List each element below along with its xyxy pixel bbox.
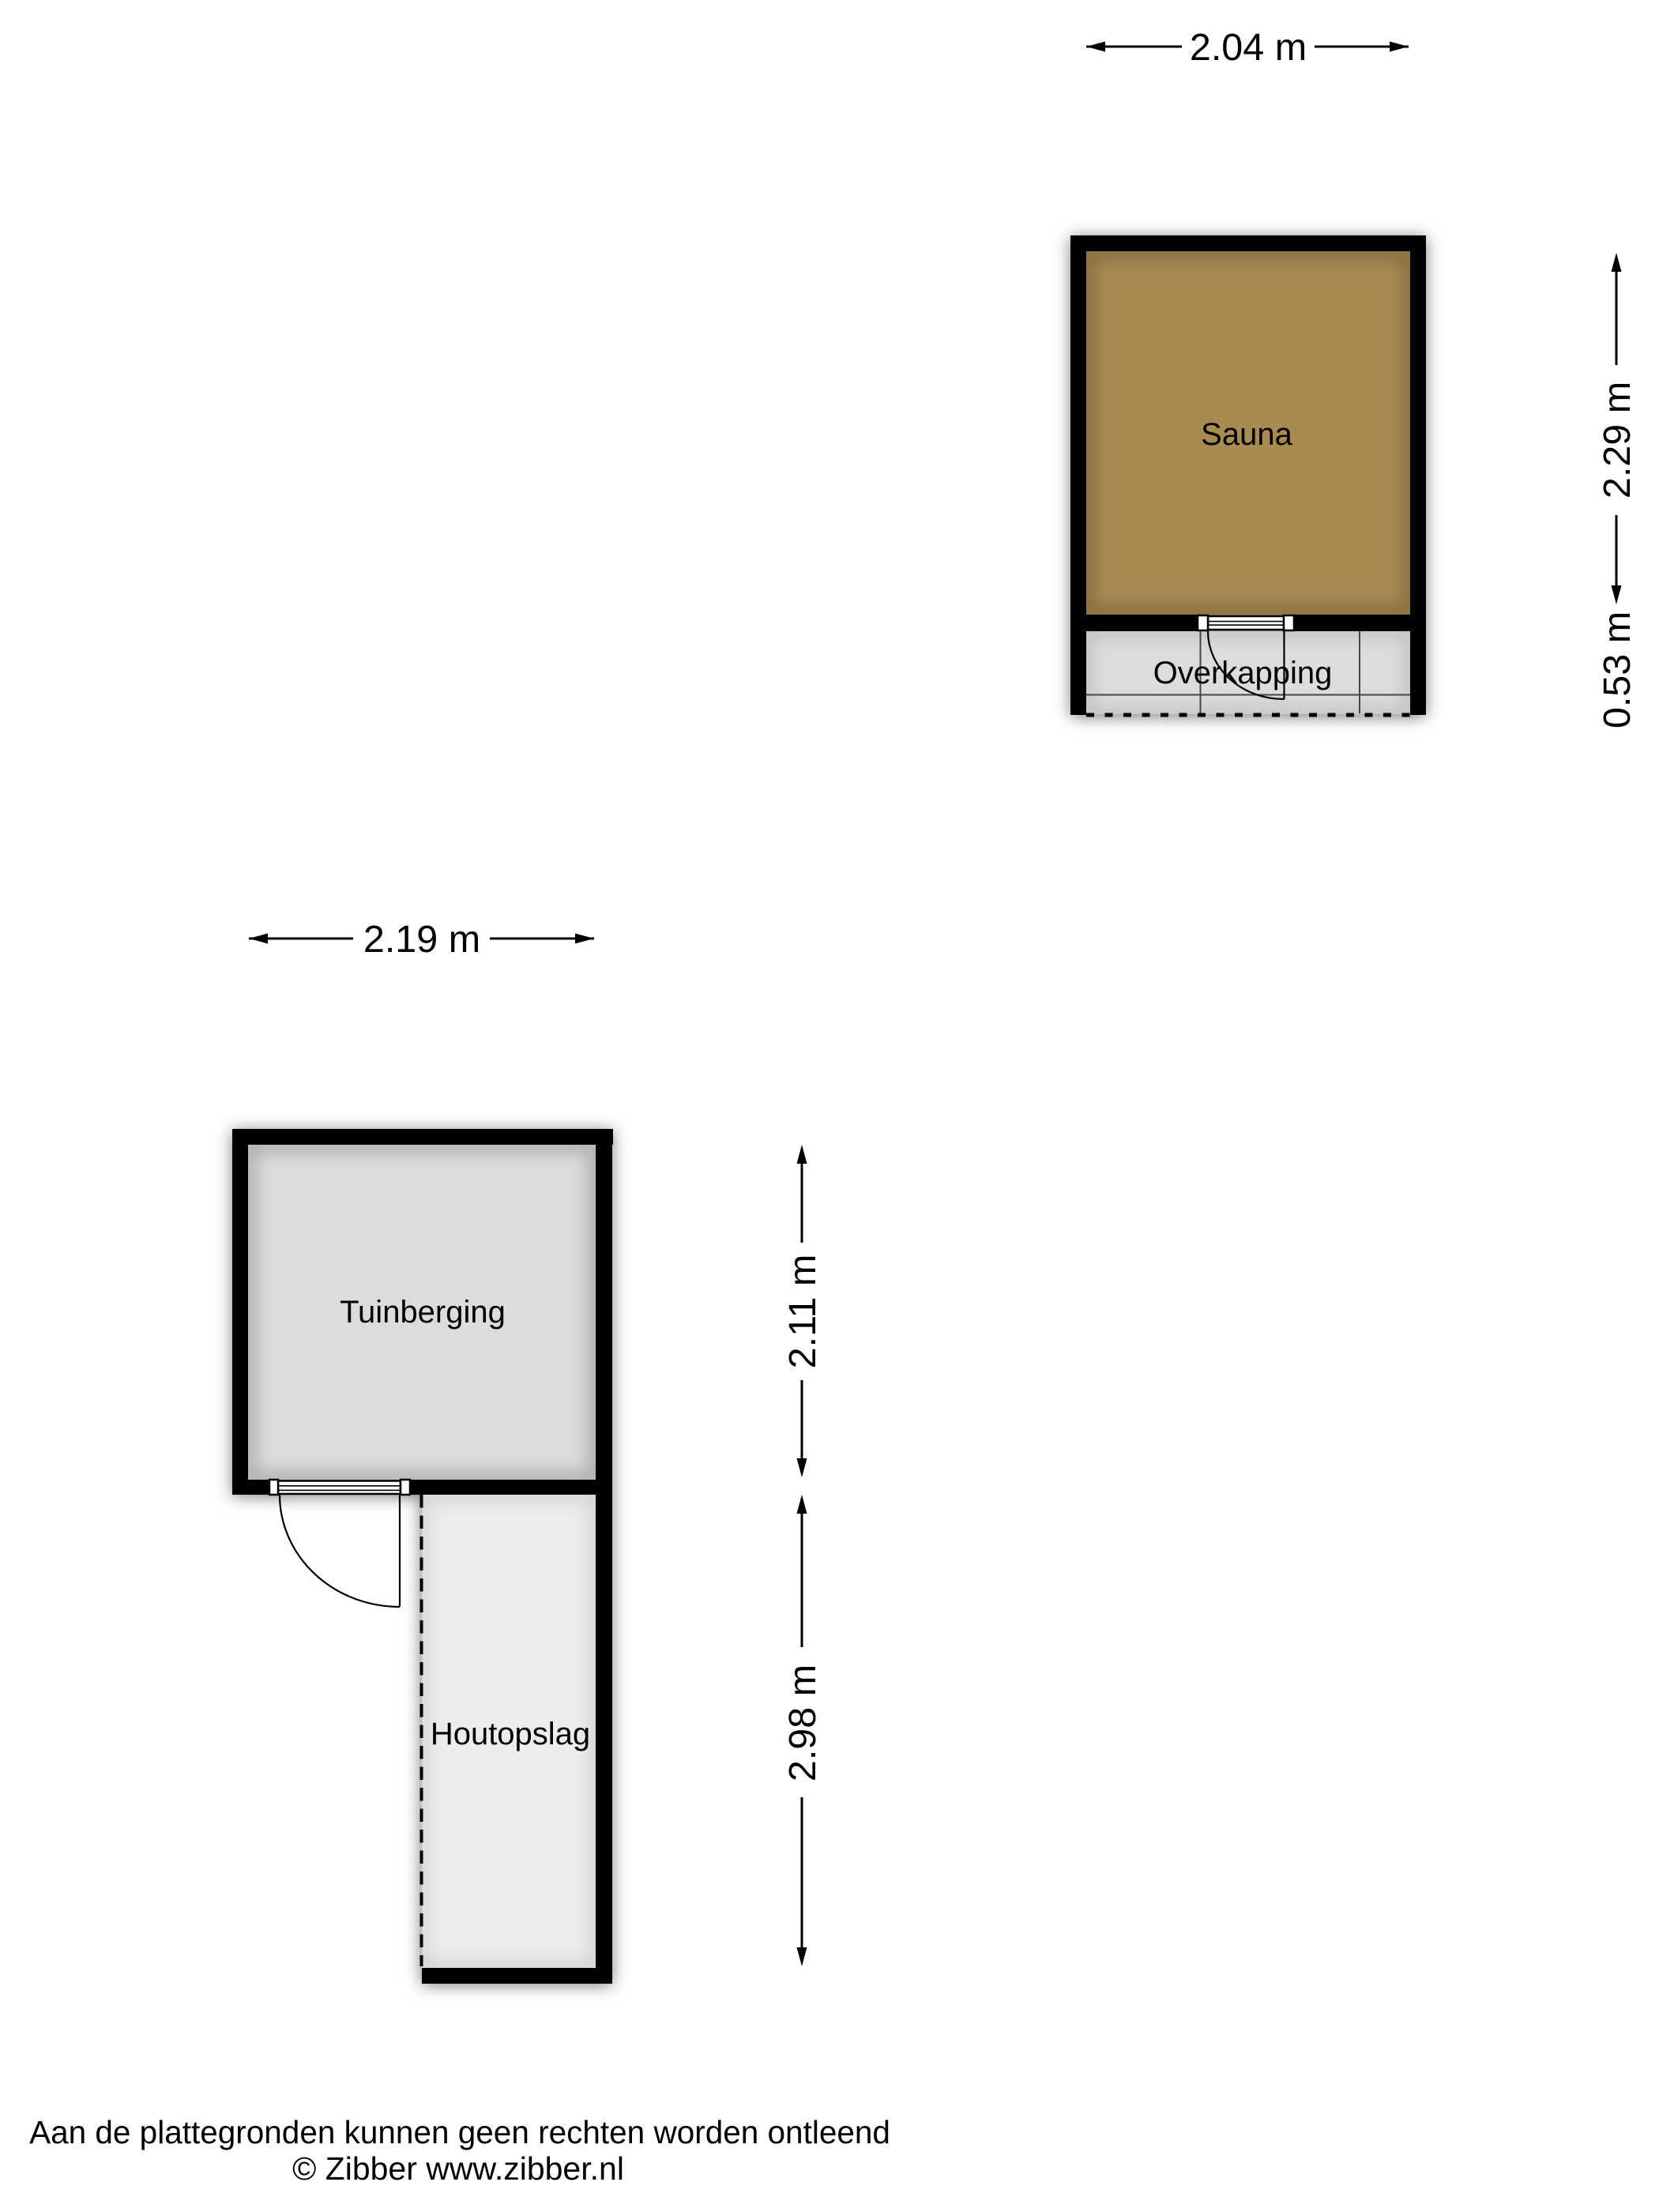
svg-text:Tuinberging: Tuinberging [340, 1295, 506, 1330]
svg-text:2.29 m: 2.29 m [1596, 382, 1638, 498]
svg-text:© Zibber www.zibber.nl: © Zibber www.zibber.nl [292, 2150, 624, 2187]
svg-text:2.19 m: 2.19 m [363, 918, 480, 961]
svg-text:Sauna: Sauna [1201, 417, 1292, 452]
svg-text:Aan de plattegronden kunnen ge: Aan de plattegronden kunnen geen rechten… [29, 2114, 890, 2150]
svg-text:2.04 m: 2.04 m [1190, 26, 1307, 69]
svg-text:2.11 m: 2.11 m [781, 1255, 824, 1369]
svg-text:0.53 m: 0.53 m [1596, 611, 1638, 728]
svg-text:Overkapping: Overkapping [1153, 656, 1333, 690]
svg-text:Houtopslag: Houtopslag [431, 1717, 590, 1751]
svg-text:2.98 m: 2.98 m [781, 1665, 824, 1781]
